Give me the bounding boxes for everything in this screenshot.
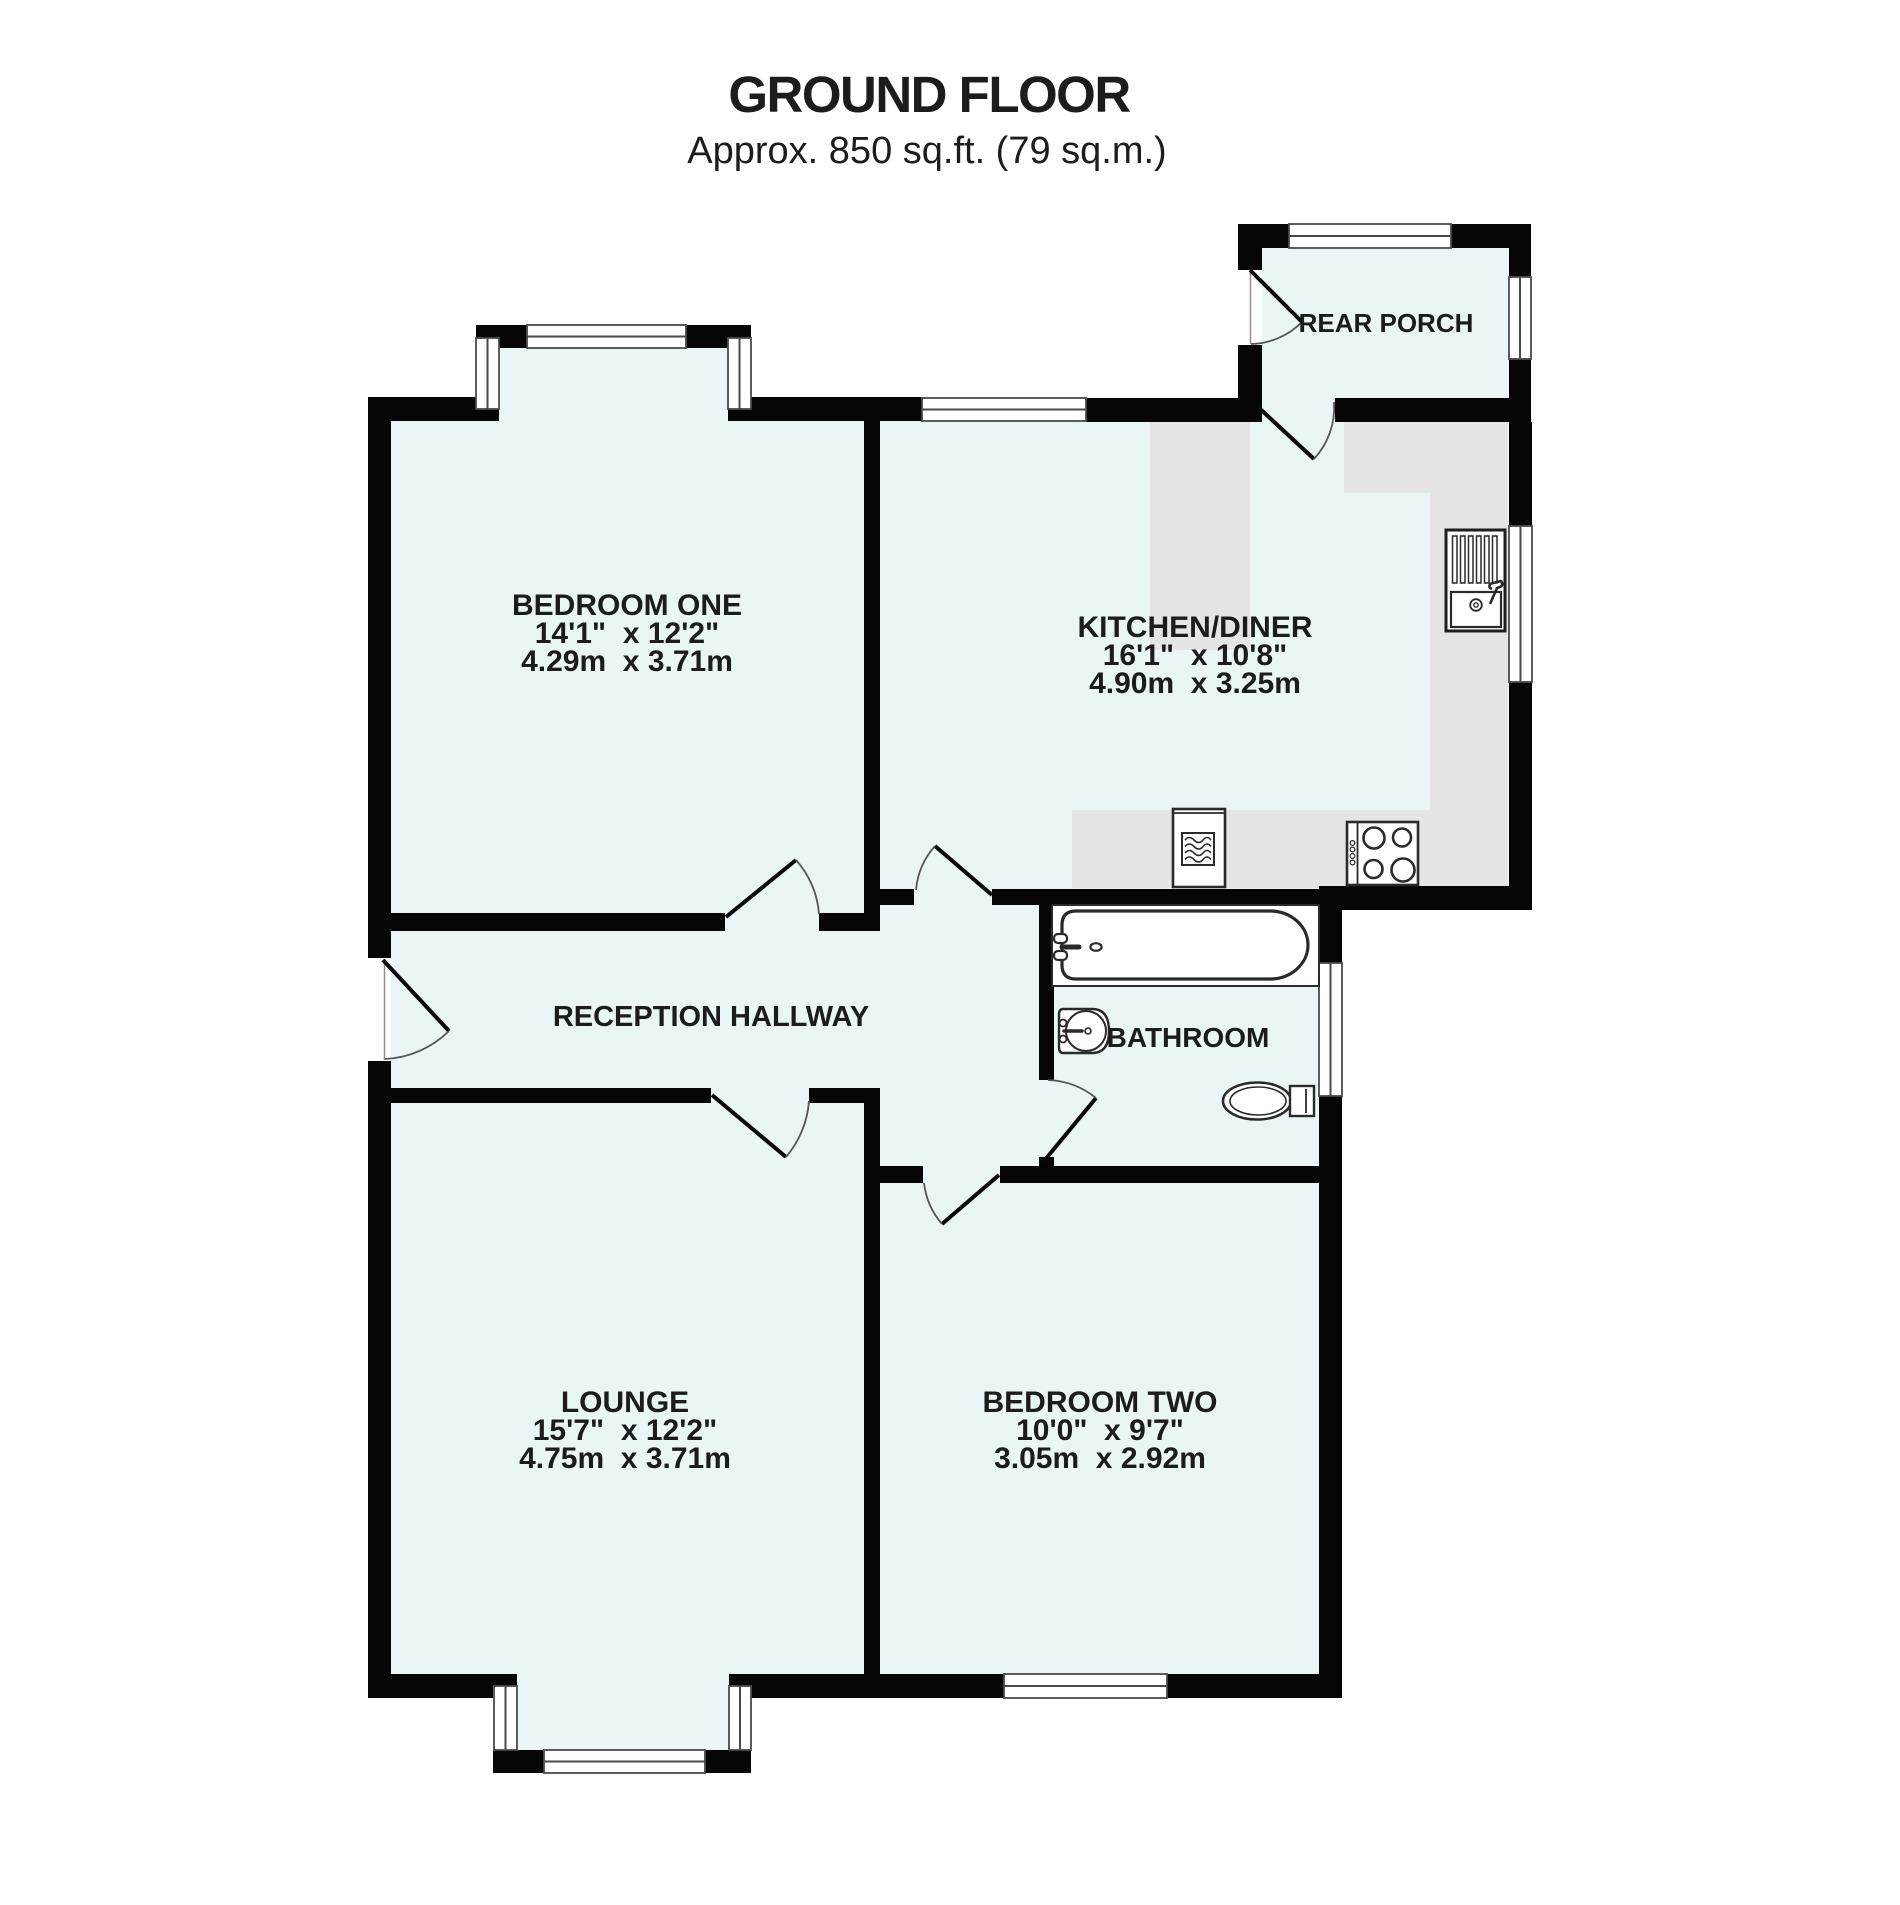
svg-text:3.05m x 2.92m: 3.05m x 2.92m [994, 1442, 1206, 1475]
svg-text:4.75m x 3.71m: 4.75m x 3.71m [519, 1442, 731, 1475]
svg-text:Approx. 850 sq.ft. (79 sq.m.): Approx. 850 sq.ft. (79 sq.m.) [687, 130, 1166, 172]
svg-text:4.90m x 3.25m: 4.90m x 3.25m [1089, 667, 1301, 700]
svg-text:BATHROOM: BATHROOM [1107, 1022, 1270, 1053]
svg-text:GROUND FLOOR: GROUND FLOOR [728, 66, 1130, 123]
svg-text:REAR PORCH: REAR PORCH [1299, 308, 1474, 338]
svg-text:4.29m x 3.71m: 4.29m x 3.71m [521, 645, 733, 678]
svg-text:RECEPTION HALLWAY: RECEPTION HALLWAY [553, 1001, 869, 1033]
